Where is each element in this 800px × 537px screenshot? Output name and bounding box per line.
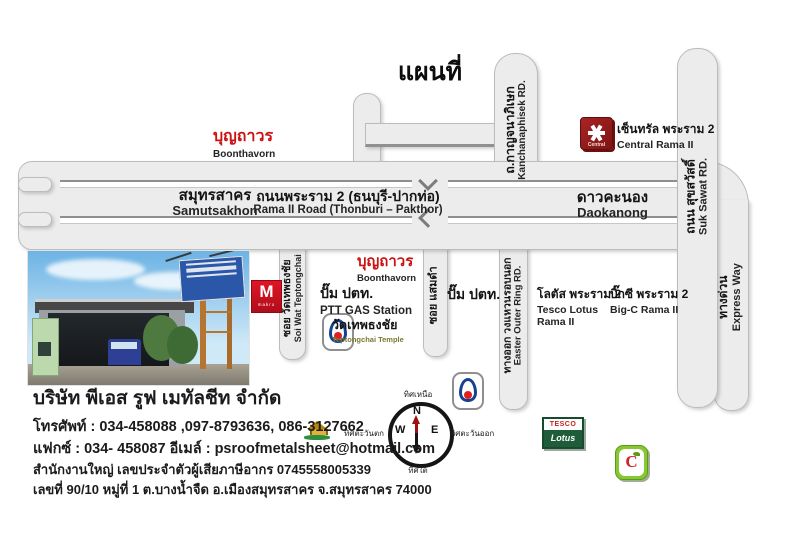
ptt-logo-icon xyxy=(452,372,484,410)
tesco-english-2: Rama II xyxy=(537,316,621,328)
sign-text-line xyxy=(186,260,237,266)
poi-ptt1-label: ปั๊ม ปตท. PTT GAS Station xyxy=(320,283,412,317)
kanchanaphisek-thai: ถ.กาญจนาภิเษก xyxy=(503,30,517,230)
poi-temple-label: วัดเทพธงชัย Teptongchai Temple xyxy=(332,315,404,344)
compass-e: E xyxy=(431,424,438,436)
temple-thai: วัดเทพธงชัย xyxy=(332,315,404,335)
tree xyxy=(167,326,198,364)
page-title: แผนที่ xyxy=(370,52,490,92)
boonthavorn-top-thai: บุญถาวร xyxy=(213,124,275,149)
boonthavorn-top-english: Boonthavorn xyxy=(213,149,275,160)
road-label-expressway: ทางด่วน Express Way xyxy=(717,197,743,397)
temple-english: Teptongchai Temple xyxy=(332,335,404,344)
bigc-thai: บิ๊กซี พระราม 2 xyxy=(610,285,688,304)
bigc-inner: C xyxy=(619,449,644,476)
bigc-logo-icon: C xyxy=(615,445,648,480)
expressway-thai: ทางด่วน xyxy=(717,197,731,397)
rama2-thai: ถนนพระราม 2 (ธนบุรี-ปากท่อ) xyxy=(248,188,448,204)
sign-text-line xyxy=(186,265,237,273)
tesco-english-1: Tesco Lotus xyxy=(537,304,621,316)
road-label-outer-ring: ทางออก วงแหวนรอบนอก Easter Outer Ring RD… xyxy=(502,215,525,415)
truck-windshield xyxy=(111,342,138,349)
compass-south-label: ทิศใต้ xyxy=(390,464,446,477)
photo-ground xyxy=(28,364,249,385)
compass-east-label: ทิศตะวันออก xyxy=(450,427,494,440)
road-label-soi-wat: ซอย วัดเทพธงชัย Soi Wat Teptongchai xyxy=(281,198,303,398)
median-line xyxy=(448,180,677,188)
company-address: เลขที่ 90/10 หมู่ที่ 1 ต.บางน้ำจืด อ.เมื… xyxy=(33,479,432,500)
poi-central-label: เซ็นทรัล พระราม 2 Central Rama II xyxy=(617,120,714,151)
compass-north-label: ทิศเหนือ xyxy=(390,388,446,401)
road-label-rama2: ถนนพระราม 2 (ธนบุรี-ปากท่อ) Rama II Road… xyxy=(248,188,448,217)
road-label-soi-samaedam: ซอย แสมดำ xyxy=(428,195,441,395)
bigc-english: Big-C Rama II xyxy=(610,304,688,316)
road-branch-to-kanchanaphisek xyxy=(365,123,497,147)
ptt1-thai: ปั๊ม ปตท. xyxy=(320,283,412,305)
company-phone: โทรศัพท์ : 034-458088 ,097-8793636, 086-… xyxy=(33,415,364,438)
central-logo-icon: Central xyxy=(580,117,613,150)
makro-word: makro xyxy=(252,303,281,307)
poi-boonthavorn-top: บุญถาวร Boonthavorn xyxy=(213,124,275,160)
cloud-shape xyxy=(46,259,145,280)
billboard-sign xyxy=(179,256,246,303)
sign-ladder-bar xyxy=(200,331,231,333)
bigc-leaf-icon xyxy=(633,452,640,456)
tesco-logo-icon: TESCO Lotus xyxy=(542,417,584,449)
booth-window xyxy=(38,342,51,355)
expressway-english: Express Way xyxy=(731,197,744,397)
outer-ring-english: Easter Outer Ring RD. xyxy=(514,215,525,415)
tesco-thai: โลตัส พระราม 2 xyxy=(537,285,621,304)
company-fax-email: แฟกซ์ : 034- 458087 อีเมล์ : psroofmetal… xyxy=(33,437,435,460)
compass-w: W xyxy=(395,424,405,436)
poi-bigc-label: บิ๊กซี พระราม 2 Big-C Rama II xyxy=(610,285,688,316)
central-thai: เซ็นทรัล พระราม 2 xyxy=(617,120,714,139)
daokanong-english: Daokanong xyxy=(535,206,690,221)
makro-m-letter: M xyxy=(252,281,281,303)
road-label-daokanong: ดาวคะนอง Daokanong xyxy=(535,189,690,221)
daokanong-thai: ดาวคะนอง xyxy=(535,189,690,206)
company-name: บริษัท พีเอส รูฟ เมทัลชีท จำกัด xyxy=(33,383,281,413)
soi-wat-english: Soi Wat Teptongchai xyxy=(293,198,303,398)
poi-boonthavorn-mid: บุญถาวร Boonthavorn xyxy=(357,249,416,284)
soi-wat-thai: ซอย วัดเทพธงชัย xyxy=(281,198,293,398)
ptt2-thai: ปั๊ม ปตท. xyxy=(447,284,500,306)
factory-photo xyxy=(27,250,250,386)
sign-text-line xyxy=(187,272,238,278)
soi-samaedam-thai: ซอย แสมดำ xyxy=(428,195,441,395)
road-uturn-stub xyxy=(18,212,52,227)
road-label-kanchanaphisek: ถ.กาญจนาภิเษก Kanchanaphisek RD. xyxy=(503,30,529,230)
boonthavorn-mid-thai: บุญถาวร xyxy=(357,249,416,273)
road-uturn-stub xyxy=(18,177,52,192)
map-page: แผนที่ สมุทรสาคร Samutsakhon ถนนพระราม 2… xyxy=(0,0,800,537)
tesco-logo-top-word: TESCO xyxy=(544,419,582,430)
ptt-dot-icon xyxy=(464,391,472,399)
company-tax-id: สำนักงานใหญ่ เลขประจำตัวผู้เสียภาษีอากร … xyxy=(33,459,371,480)
central-english: Central Rama II xyxy=(617,139,714,151)
central-logo-word: Central xyxy=(581,142,612,148)
poi-tesco-label: โลตัส พระราม 2 Tesco Lotus Rama II xyxy=(537,285,621,328)
kanchanaphisek-english: Kanchanaphisek RD. xyxy=(517,30,529,230)
rama2-english: Rama II Road (Thonburi – Pakthor) xyxy=(248,204,448,217)
makro-logo-icon: M makro xyxy=(251,280,282,313)
tesco-logo-bottom-word: Lotus xyxy=(544,430,582,447)
sign-ladder-bar xyxy=(200,311,231,313)
compass-north-arrow-icon xyxy=(415,423,418,433)
